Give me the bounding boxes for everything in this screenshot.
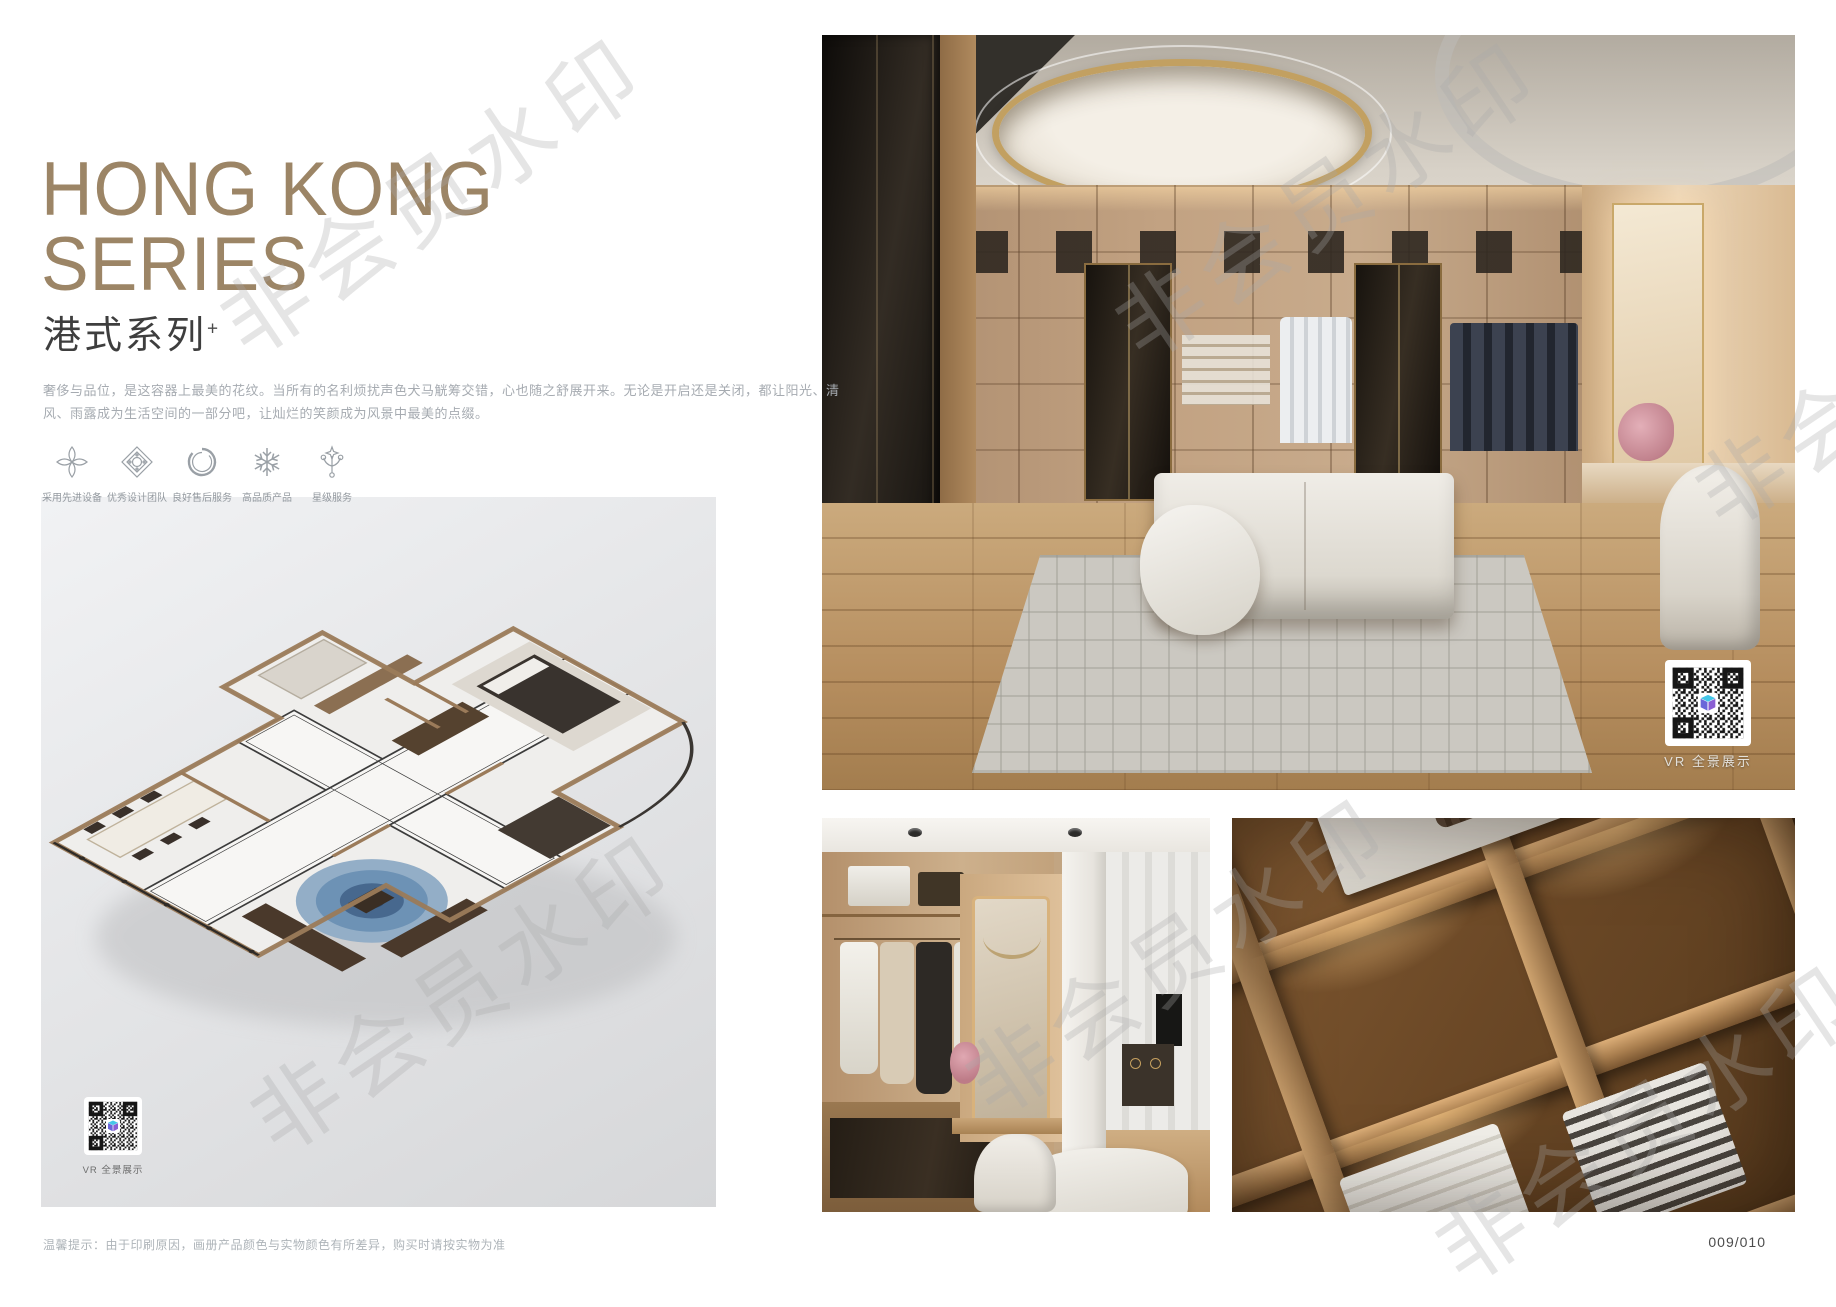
feature-list: 采用先进设备 优秀设计团队 良好售后服务 [41,444,363,504]
hanging-garment [840,942,878,1074]
feature-label: 采用先进设备 [41,489,103,504]
description-line: 奢侈与品位，是这容器上最美的花纹。当所有的名利烦扰声色犬马觥筹交错，心也随之舒展… [43,379,840,402]
feature-label: 高品质产品 [236,489,298,504]
dark-suits-hanging [1450,323,1578,451]
dark-glass-cabinet [1084,263,1172,501]
floor-plan-qr-code [84,1097,142,1155]
dressing-mirror [972,896,1050,1130]
medallion-icon [119,444,155,480]
print-disclaimer: 温馨提示：由于印刷原因，画册产品颜色与实物颜色有所差异，购买时请按实物为准 [43,1236,506,1253]
floor-plan-panel: VR 全景展示 [41,497,716,1207]
downlight-icon [1068,828,1082,837]
hanging-garment [916,942,952,1094]
downlight-icon [908,828,922,837]
vanity-chair [974,1134,1056,1212]
photo-vignette [1232,818,1795,1212]
dark-glass-cabinet [1354,263,1442,501]
snowflake-icon [249,444,285,480]
title-line-1: HONG KONG [41,152,494,227]
gold-ring-handle [1150,1058,1161,1069]
description-line: 风、雨露成为生活空间的一部分吧，让灿烂的笑颜成为风景中最美的点缀。 [43,402,840,425]
folded-clothes [1182,335,1270,405]
floor-plan-vr-label: VR 全景展示 [59,1162,167,1176]
title-line-2: SERIES [41,227,494,302]
star-branch-icon [314,444,350,480]
feature-advanced-equipment: 采用先进设备 [41,444,103,504]
vanity-chair [1660,465,1760,650]
feature-label: 星级服务 [301,489,363,504]
subtitle-text: 港式系列 [43,315,207,357]
feature-quality-product: 高品质产品 [236,444,298,504]
vanity-counter [952,1118,1074,1134]
feature-label: 优秀设计团队 [106,489,168,504]
page-title: HONG KONG SERIES [41,152,523,302]
pink-flowers [1618,403,1674,461]
feature-label: 良好售后服务 [171,489,233,504]
ring-icon [184,444,220,480]
white-shirts-hanging [1280,317,1352,443]
main-photo-walk-in-closet: VR 全景展示 [822,35,1795,790]
white-storage-box [848,866,910,906]
feature-after-sales: 良好售后服务 [171,444,233,504]
gold-ring-handle [1130,1058,1141,1069]
feature-star-service: 星级服务 [301,444,363,504]
series-description: 奢侈与品位，是这容器上最美的花纹。当所有的名利烦扰声色犬马觥筹交错，心也随之舒展… [43,379,840,425]
ceiling [822,818,1210,852]
main-photo-qr-code [1665,660,1751,746]
subtitle-superscript: + [207,318,221,339]
page-subtitle-cn: 港式系列+ [43,304,221,359]
wall-tv [1156,994,1182,1046]
dark-storage-box [918,872,964,906]
main-photo-vr-label: VR 全景展示 [1648,751,1768,770]
hanging-garment [880,942,914,1084]
dressing-area-photo [822,818,1210,1212]
bags-shelf-row [972,231,1595,273]
page-number: 009/010 [1708,1234,1766,1250]
floor-plan-render [41,497,716,1207]
feature-design-team: 优秀设计团队 [106,444,168,504]
catalog-page: HONG KONG SERIES 港式系列+ 奢侈与品位，是这容器上最美的花纹。… [0,0,1836,1307]
shelf-detail-photo [1232,818,1795,1212]
petal-diamond-icon [54,444,90,480]
side-cabinet [1122,1044,1174,1106]
